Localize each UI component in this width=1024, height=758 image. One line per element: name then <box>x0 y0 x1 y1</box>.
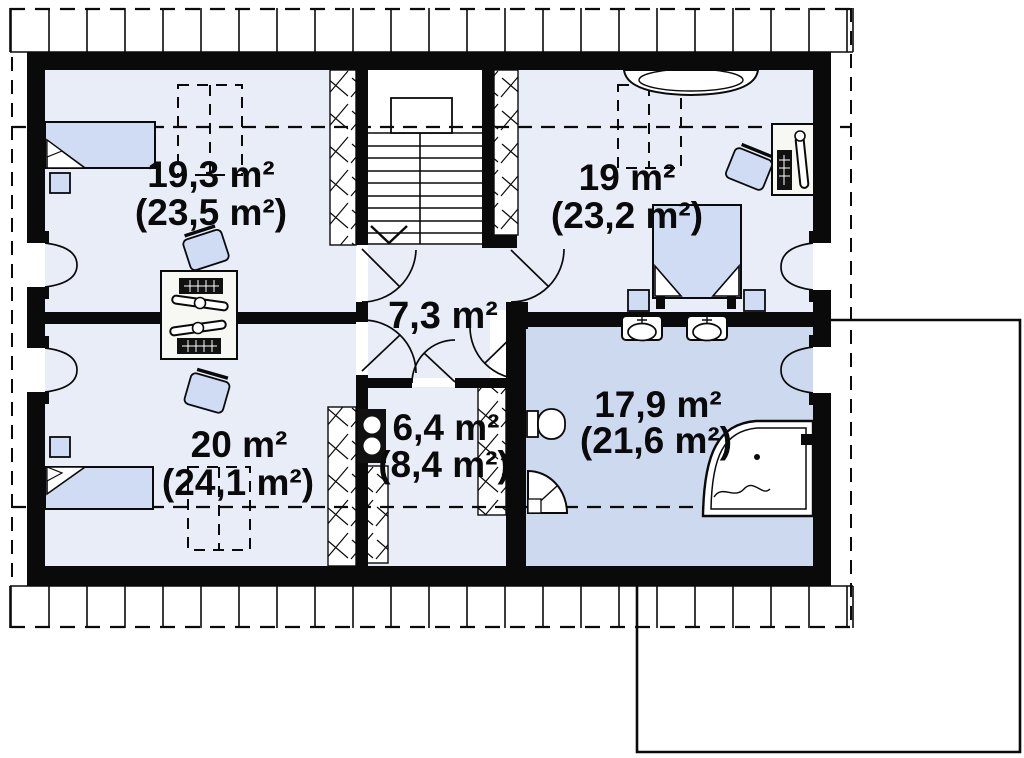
nightstand-icon <box>50 437 70 457</box>
window-jamb-block <box>27 392 49 404</box>
wall-corner-block <box>506 302 528 329</box>
wall-utility-top <box>368 378 412 388</box>
wall-exterior-left <box>27 392 45 585</box>
wall-exterior-bottom <box>27 566 831 586</box>
label-bedroom-top-left-total: (23,5 m²) <box>135 192 287 233</box>
faucet-icon <box>801 434 813 445</box>
floor-plan-page: 19,3 m² (23,5 m²) 19 m² (23,2 m²) 7,3 m²… <box>0 0 1024 758</box>
wall-exterior-right <box>813 393 831 585</box>
nightstand-icon <box>628 290 649 311</box>
label-bedroom-bottom-left-total: (24,1 m²) <box>162 462 314 503</box>
mouse-icon <box>193 323 204 334</box>
label-hall-area: 7,3 m² <box>388 295 498 337</box>
label-bedroom-top-right-area: 19 m² <box>579 157 676 198</box>
label-bathroom-area: 17,9 m² <box>594 384 722 425</box>
desk-icon <box>161 271 237 359</box>
label-bathroom-total: (21,6 m²) <box>580 420 732 461</box>
floor-plan-drawing: 19,3 m² (23,5 m²) 19 m² (23,2 m²) 7,3 m²… <box>0 0 1024 758</box>
nightstand-icon <box>50 173 70 193</box>
mouse-icon <box>795 131 805 141</box>
window-jamb-block <box>27 287 49 299</box>
window-jamb-block <box>809 290 831 302</box>
mouse-icon <box>195 298 206 309</box>
wall-door-jamb <box>482 235 517 248</box>
window-jamb-block <box>809 231 831 243</box>
toilet-icon <box>527 409 565 439</box>
label-utility-area: 6,4 m² <box>393 407 500 448</box>
label-bedroom-top-right-total: (23,2 m²) <box>551 195 703 236</box>
wall-exterior-top <box>27 52 831 70</box>
washbasin-icon <box>622 316 662 341</box>
window-jamb-block <box>809 335 831 347</box>
wall-utility-top <box>455 378 506 388</box>
wall-exterior-left <box>27 52 45 243</box>
wall-hall-west <box>356 302 368 322</box>
drain-icon <box>754 454 760 460</box>
nightstand-icon <box>744 290 765 311</box>
stair-landing <box>391 98 452 133</box>
wall-interior-bedroom-bathroom <box>522 312 831 327</box>
washbasin-icon <box>687 316 727 341</box>
label-bedroom-top-left-area: 19,3 m² <box>147 154 275 195</box>
wall-exterior-right <box>813 52 831 243</box>
wall-utility-left <box>356 375 368 566</box>
wall-stairwell-left <box>356 70 368 245</box>
window-jamb-block <box>27 231 49 243</box>
window-jamb-block <box>809 393 831 405</box>
label-bedroom-bottom-left-area: 20 m² <box>191 424 288 465</box>
label-utility-total: (8,4 m²) <box>378 444 510 485</box>
wall-stairwell-right <box>482 70 494 235</box>
window-jamb-block <box>27 336 49 348</box>
